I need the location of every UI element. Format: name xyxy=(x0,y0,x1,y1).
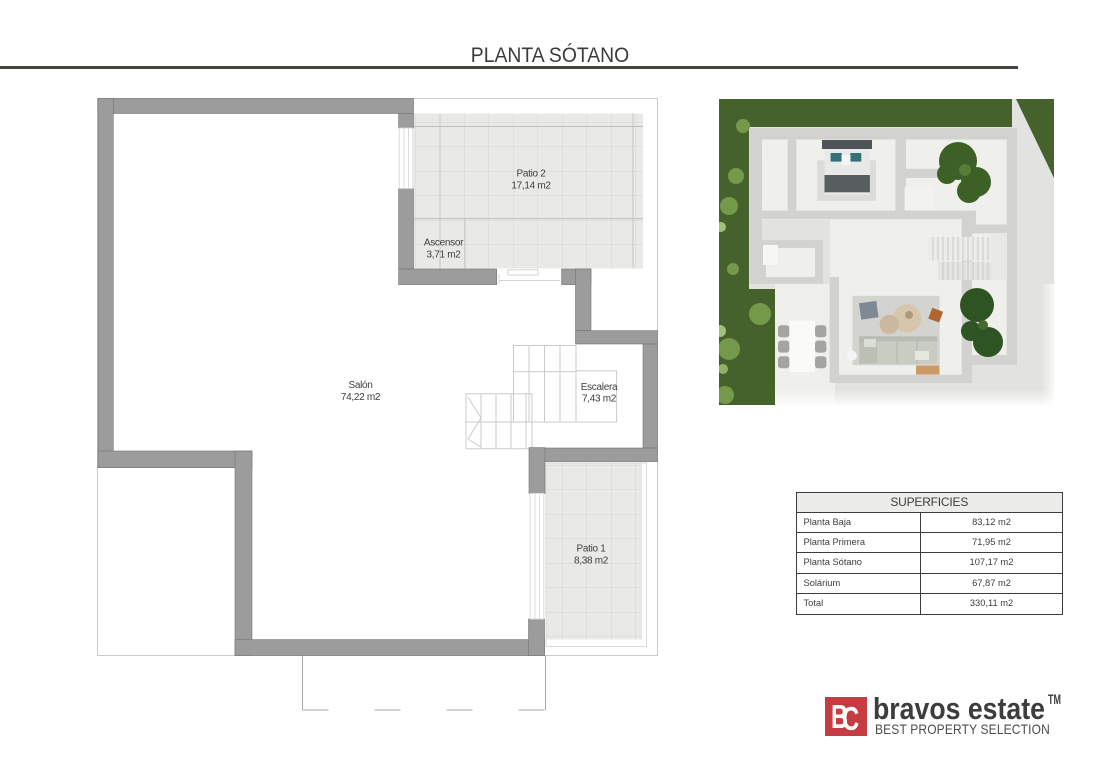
svg-text:74,22 m2: 74,22 m2 xyxy=(341,392,381,403)
svg-text:Ascensor: Ascensor xyxy=(424,238,464,249)
svg-text:Escalera: Escalera xyxy=(581,382,618,393)
svg-text:Patio 2: Patio 2 xyxy=(516,169,546,180)
svg-text:8,38 m2: 8,38 m2 xyxy=(574,556,609,567)
svg-text:3,71 m2: 3,71 m2 xyxy=(426,250,461,261)
svg-text:17,14 m2: 17,14 m2 xyxy=(511,181,551,192)
svg-text:Patio 1: Patio 1 xyxy=(576,544,606,555)
svg-text:7,43 m2: 7,43 m2 xyxy=(582,394,617,405)
svg-text:Salón: Salón xyxy=(348,380,372,391)
